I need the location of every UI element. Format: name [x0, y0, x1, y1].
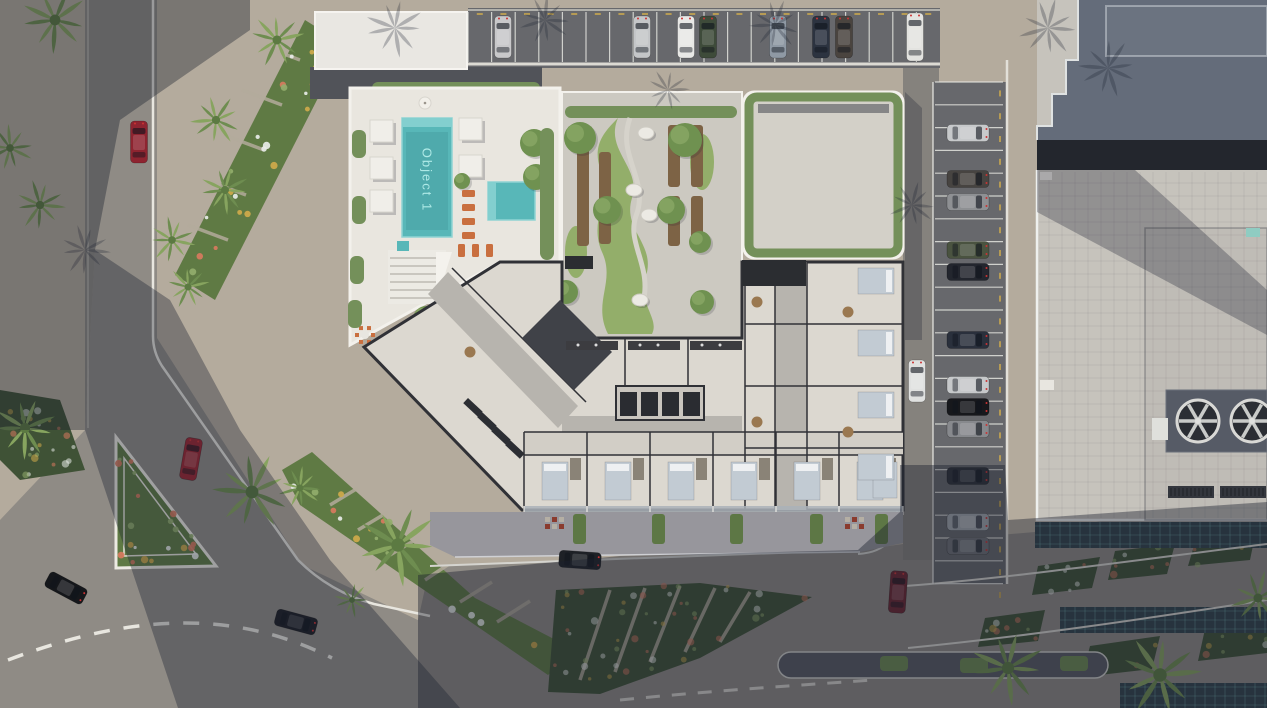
street-terrace	[430, 512, 903, 557]
car	[836, 16, 853, 58]
table	[752, 297, 763, 308]
kids-pool-steps	[488, 182, 496, 220]
sun-lounger	[472, 244, 479, 257]
hedge-strip	[540, 128, 554, 260]
wheel-stop	[999, 318, 1001, 324]
wardrobe	[633, 458, 644, 480]
car	[947, 377, 989, 394]
wheel-stop	[500, 13, 506, 15]
car	[131, 121, 148, 163]
wheel-stop	[999, 250, 1001, 256]
car	[947, 399, 989, 416]
wardrobe	[822, 458, 833, 480]
flower	[270, 162, 277, 169]
wheel-stop	[713, 13, 719, 15]
terrace-table	[859, 524, 864, 529]
garden-stone	[626, 184, 642, 196]
glass-gap	[1037, 140, 1267, 170]
sun-lounger	[458, 244, 465, 257]
kitchen-counter	[690, 341, 742, 350]
aerial-site-render: Object 1	[0, 0, 1267, 708]
courtyard-garden	[540, 92, 742, 338]
terrace-table	[852, 517, 857, 522]
skylight	[1246, 228, 1260, 237]
roof-frame	[1106, 6, 1267, 56]
flower	[338, 491, 344, 497]
flower	[62, 460, 70, 468]
elevator	[620, 392, 637, 416]
flower	[244, 211, 250, 217]
wheel-stop	[999, 227, 1001, 233]
hvac-step	[1152, 418, 1168, 440]
cafe-chair	[355, 333, 359, 337]
car	[947, 242, 989, 259]
elevator	[641, 392, 658, 416]
wheel-stop	[999, 273, 1001, 279]
flower	[51, 448, 54, 451]
car	[907, 13, 924, 61]
table	[465, 347, 476, 358]
wheel-stop	[999, 182, 1001, 188]
garden-stone	[632, 294, 648, 306]
cabana	[459, 118, 482, 140]
wheel-stop	[999, 341, 1001, 347]
flower	[233, 194, 238, 199]
sun-lounger	[462, 232, 475, 239]
car	[634, 16, 651, 58]
table	[752, 417, 763, 428]
car	[813, 16, 830, 58]
flower	[281, 84, 288, 91]
wheel-stop	[854, 13, 860, 15]
scene-canvas: Object 1	[0, 0, 1267, 708]
hedge-planter	[350, 256, 364, 284]
garden-stone	[641, 209, 657, 221]
wheel-stop	[999, 364, 1001, 370]
wheel-stop	[999, 204, 1001, 210]
hedge-planter	[348, 300, 362, 328]
wheel-stop	[999, 455, 1001, 461]
wheel-stop	[689, 13, 695, 15]
wheel-stop	[736, 13, 742, 15]
hedge-planter	[352, 130, 366, 158]
flower	[71, 445, 75, 449]
terrace-table	[859, 517, 864, 522]
planter	[730, 514, 743, 544]
car	[909, 360, 926, 402]
flower	[261, 146, 266, 151]
wheel-stop	[902, 13, 908, 15]
jacuzzi	[397, 241, 409, 251]
sun-lounger	[462, 190, 475, 197]
terrace-table	[545, 517, 550, 522]
terrace-table	[845, 524, 850, 529]
terrace-table	[559, 517, 564, 522]
roof-unit	[1040, 380, 1054, 390]
wardrobe	[696, 458, 707, 480]
wheel-stop	[878, 13, 884, 15]
flower	[375, 537, 379, 541]
flower	[197, 253, 203, 259]
parasol	[419, 97, 431, 109]
flower	[52, 463, 56, 467]
flower	[10, 431, 16, 437]
main-pool: Object 1	[402, 118, 452, 237]
table	[843, 427, 854, 438]
roof-terrace	[744, 92, 903, 258]
wheel-stop	[666, 13, 672, 15]
flower	[63, 432, 70, 439]
flower	[331, 508, 337, 514]
wood-planter	[577, 148, 589, 246]
sun-lounger	[462, 204, 475, 211]
pool-object-label[interactable]: Object 1	[420, 148, 435, 212]
wheel-stop	[999, 387, 1001, 393]
wheel-stop	[784, 13, 790, 15]
hvac-fan	[1231, 400, 1267, 442]
garden-stone	[638, 127, 654, 139]
cafe-chair	[371, 333, 375, 337]
stair-roof	[742, 260, 806, 286]
wheel-stop	[642, 13, 648, 15]
car	[947, 171, 989, 188]
car	[947, 264, 989, 281]
cafe-chair	[359, 340, 363, 344]
cafe-table	[361, 331, 369, 339]
planter	[573, 514, 586, 544]
car	[947, 125, 989, 142]
car	[700, 16, 717, 58]
wheel-stop	[618, 13, 624, 15]
wheel-stop	[807, 13, 813, 15]
terrace-table	[552, 524, 557, 529]
flower	[304, 92, 307, 95]
car	[947, 332, 989, 349]
wheel-stop	[925, 13, 931, 15]
elevator	[662, 392, 679, 416]
terrace-table	[852, 524, 857, 529]
hedge-strip	[565, 106, 737, 118]
flower	[214, 246, 218, 250]
wheel-stop	[477, 13, 483, 15]
car	[678, 16, 695, 58]
flower	[28, 453, 32, 457]
flower	[30, 447, 34, 451]
wheel-stop	[999, 432, 1001, 438]
car	[495, 16, 512, 58]
planter	[810, 514, 823, 544]
kitchen-counter	[566, 341, 618, 350]
wheel-stop	[571, 13, 577, 15]
flower	[290, 54, 294, 58]
sun-lounger	[462, 218, 475, 225]
flower	[305, 107, 310, 112]
flower	[189, 268, 196, 275]
flower	[237, 210, 242, 215]
wheel-stop	[595, 13, 601, 15]
elevator	[683, 392, 700, 416]
flower	[38, 443, 42, 447]
flower	[31, 454, 39, 462]
cabana	[370, 120, 393, 142]
wheel-stop	[999, 113, 1001, 119]
hvac-fan	[1177, 400, 1219, 442]
wheel-stop	[999, 410, 1001, 416]
kitchen-counter	[628, 341, 680, 350]
stair-roof	[565, 256, 593, 269]
flower	[205, 216, 209, 220]
wheel-stop	[760, 13, 766, 15]
wheel-stop	[999, 90, 1001, 96]
planter	[652, 514, 665, 544]
cabana	[370, 190, 393, 212]
cafe-chair	[367, 326, 371, 330]
wheel-stop	[999, 296, 1001, 302]
hedge-planter	[352, 196, 366, 224]
wardrobe	[759, 458, 770, 480]
flower	[118, 552, 125, 559]
flower	[22, 471, 29, 478]
wheel-stop	[999, 159, 1001, 165]
wheel-stop	[831, 13, 837, 15]
wheel-stop	[999, 136, 1001, 142]
wardrobe	[570, 458, 581, 480]
table	[843, 307, 854, 318]
flower	[353, 535, 360, 542]
terrace-table	[559, 524, 564, 529]
car	[947, 421, 989, 438]
car	[947, 194, 989, 211]
sun-lounger	[486, 244, 493, 257]
terrace-table	[845, 517, 850, 522]
flower	[338, 516, 342, 520]
terrace-table	[552, 517, 557, 522]
terrace-table	[545, 524, 550, 529]
cabana	[370, 157, 393, 179]
flower	[256, 135, 260, 139]
flower	[310, 50, 315, 55]
